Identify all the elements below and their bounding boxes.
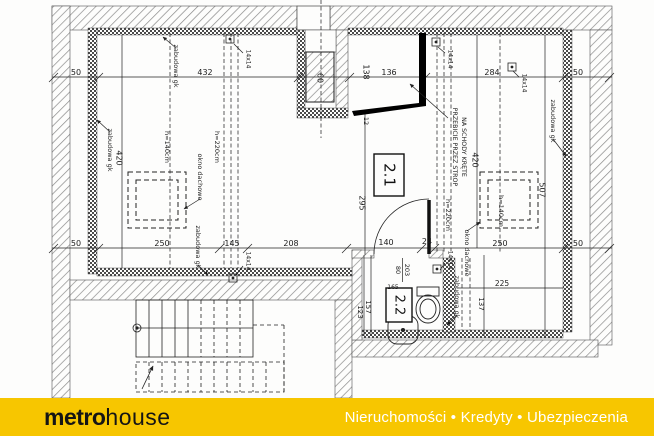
note-zabudowa-4: zabudowa gk xyxy=(194,226,202,269)
dim-bot-6: 250 xyxy=(492,239,507,248)
dim-225: 225 xyxy=(495,279,510,288)
floor-plan-area: 2.1 2.2 50 432 60 138 136 284 50 50 250 … xyxy=(0,0,654,398)
note-okno-left: okno dachowe xyxy=(196,154,204,201)
dim-420-left: 420 xyxy=(115,150,124,165)
height-140-left: h=140cm xyxy=(163,131,171,163)
wall-top-left xyxy=(52,6,297,30)
note-okno-right: okno dachowe xyxy=(463,230,471,277)
wall-left xyxy=(52,6,70,398)
dim-top-2: 60 xyxy=(316,73,325,83)
note-przebicie-line1: PRZEBICIE PRZEZ STROP xyxy=(451,108,458,187)
strip-top-right xyxy=(348,28,563,35)
dim-420-right: 420 xyxy=(471,152,480,167)
vent-label-1: 14x14 xyxy=(245,50,252,69)
wall-bath-bottom xyxy=(352,340,598,357)
dim-295: 295 xyxy=(358,195,367,210)
footer-banner: metrohouse Nieruchomości • Kredyty • Ube… xyxy=(0,398,654,436)
brand-metro: metro xyxy=(44,404,105,430)
shaft-top-void xyxy=(297,6,330,30)
shaft-void xyxy=(305,30,336,52)
dim-bot-0: 50 xyxy=(71,239,81,248)
dim-bot-7: 50 xyxy=(573,239,583,248)
dim-top-3: 138 xyxy=(362,64,371,79)
footer-tagline: Nieruchomości • Kredyty • Ubezpieczenia xyxy=(345,409,628,426)
drain-point xyxy=(401,328,404,331)
height-220-left: h=220cm xyxy=(213,131,221,163)
strip-right xyxy=(563,30,572,332)
brand-logo: metrohouse xyxy=(44,406,171,429)
wall-bottom-main xyxy=(70,280,360,300)
vent-label-3: 14x14 xyxy=(521,74,528,93)
strip-left xyxy=(88,28,97,274)
note-zabudowa-5: zabudowa gk xyxy=(453,276,461,319)
dim-123: 123 xyxy=(356,305,364,318)
dim-157: 157 xyxy=(364,300,372,313)
dim-bot-4: 140 xyxy=(378,238,393,247)
dim-top-1: 432 xyxy=(197,68,212,77)
strip-top-left xyxy=(97,28,297,35)
strip-bath-bottom xyxy=(362,330,563,338)
dim-165: 165 xyxy=(387,284,399,291)
door-size-height: 203 xyxy=(403,264,411,276)
wall-top-right xyxy=(330,6,612,30)
strip-shaft-bottom xyxy=(297,108,348,118)
room-label-2-1: 2.1 xyxy=(381,163,399,187)
wall-stair-right xyxy=(335,300,352,398)
real-estate-floor-plan-flyer: 2.1 2.2 50 432 60 138 136 284 50 50 250 … xyxy=(0,0,654,436)
vent-label-2: 14x14 xyxy=(447,50,454,69)
room-label-2-2: 2.2 xyxy=(392,295,407,316)
note-zabudowa-1: zabudowa gk xyxy=(172,45,180,88)
dim-bot-2: 145 xyxy=(224,239,239,248)
dim-top-6: 50 xyxy=(573,68,583,77)
wall-door-hinge-block xyxy=(429,250,443,258)
door-size-width: 80 xyxy=(394,266,402,274)
strip-shaft-left xyxy=(297,30,305,108)
dim-bot-3: 208 xyxy=(283,239,298,248)
vent-label-5: 14x14 xyxy=(245,252,252,271)
height-140-right: h=140cm xyxy=(497,195,505,227)
dim-bot-1: 250 xyxy=(154,239,169,248)
height-220-right: h=220cm xyxy=(444,199,452,231)
brand-house: house xyxy=(105,404,170,430)
note-zabudowa-3: zabudowa gk xyxy=(549,100,557,143)
strip-bottom xyxy=(97,268,352,276)
wall-bath-left xyxy=(352,250,362,340)
dim-top-5: 284 xyxy=(484,68,499,77)
floor-plan-drawing: 2.1 2.2 50 432 60 138 136 284 50 50 250 … xyxy=(0,0,654,398)
dim-137: 137 xyxy=(477,297,485,310)
dim-507: 507 xyxy=(538,182,547,197)
dim-top-4: 136 xyxy=(381,68,396,77)
dim-12: 12 xyxy=(362,117,370,125)
note-zabudowa-2: zabudowa gk xyxy=(106,129,114,172)
dim-bot-5: 24 xyxy=(422,237,432,246)
vent-label-4: 14x14 xyxy=(447,251,454,270)
note-przebicie-line2: NA SCHODY KRĘTE xyxy=(460,117,467,177)
shaft-right-wall xyxy=(336,30,348,112)
dim-top-0: 50 xyxy=(71,68,81,77)
